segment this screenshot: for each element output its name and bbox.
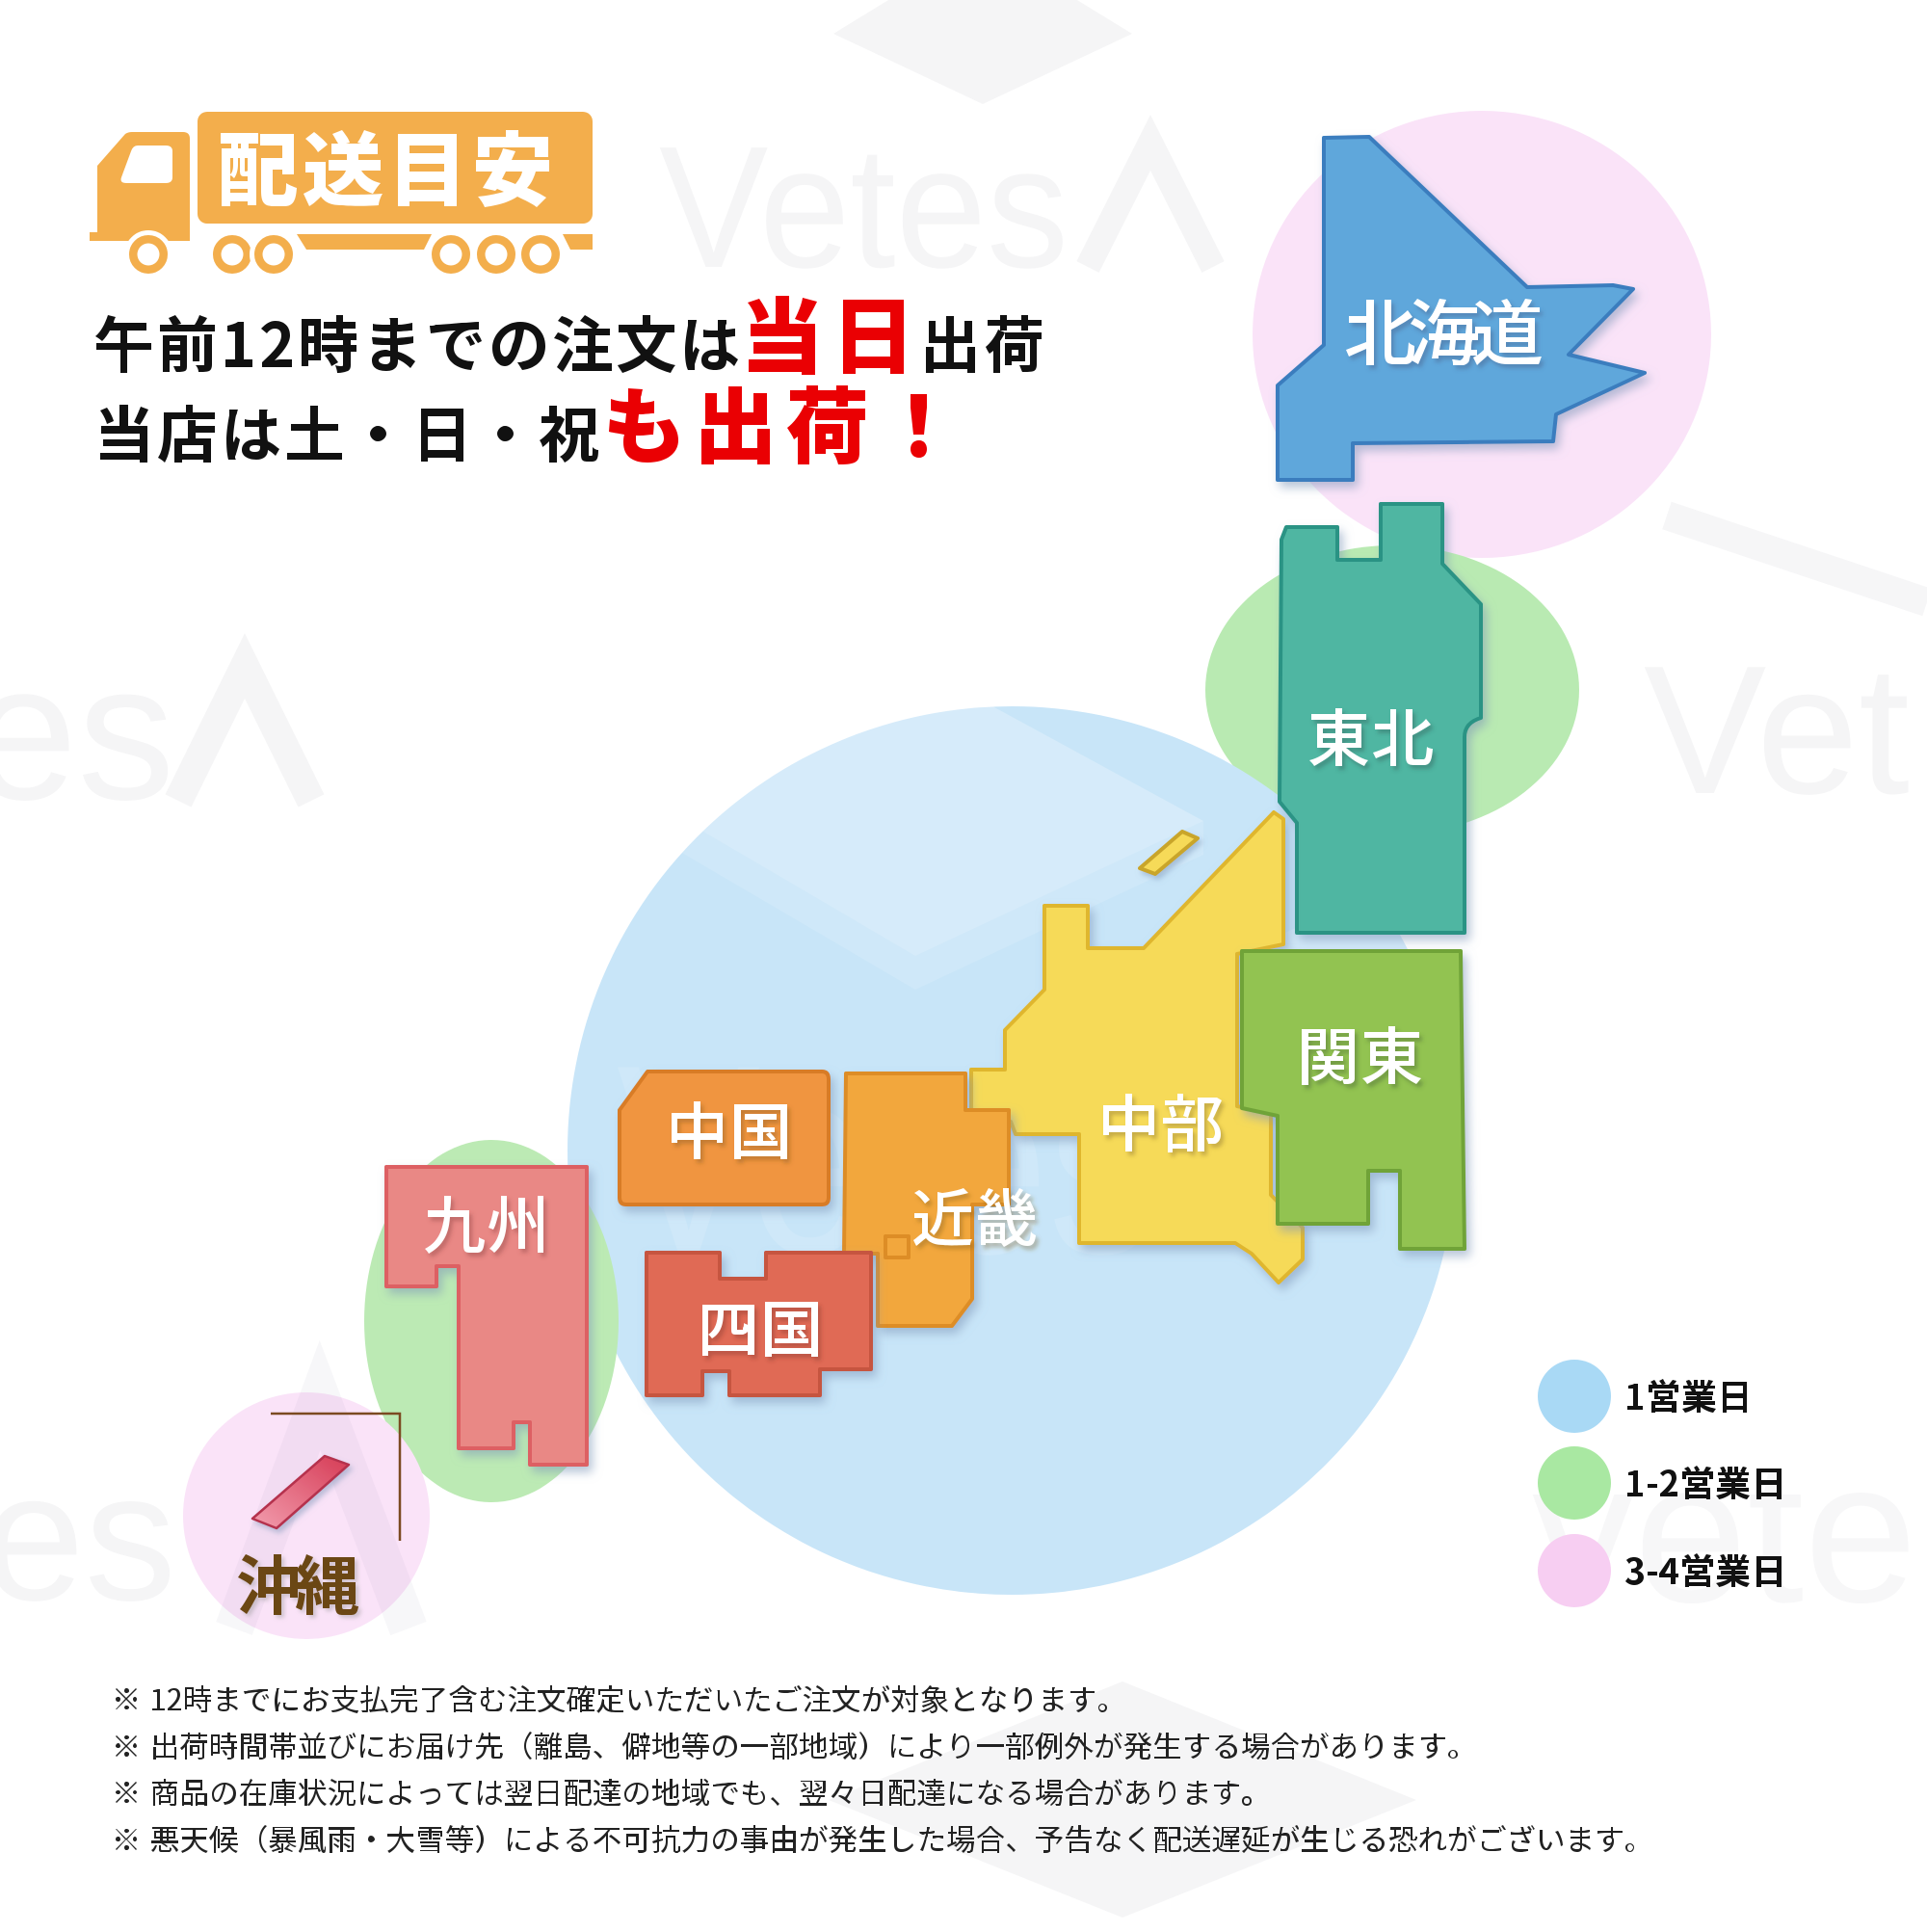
svg-text:tes: tes	[0, 1435, 176, 1639]
svg-text:Vetes: Vetes	[659, 111, 1069, 304]
svg-text:tes: tes	[0, 622, 174, 840]
svg-text:Vet: Vet	[1644, 628, 1910, 833]
